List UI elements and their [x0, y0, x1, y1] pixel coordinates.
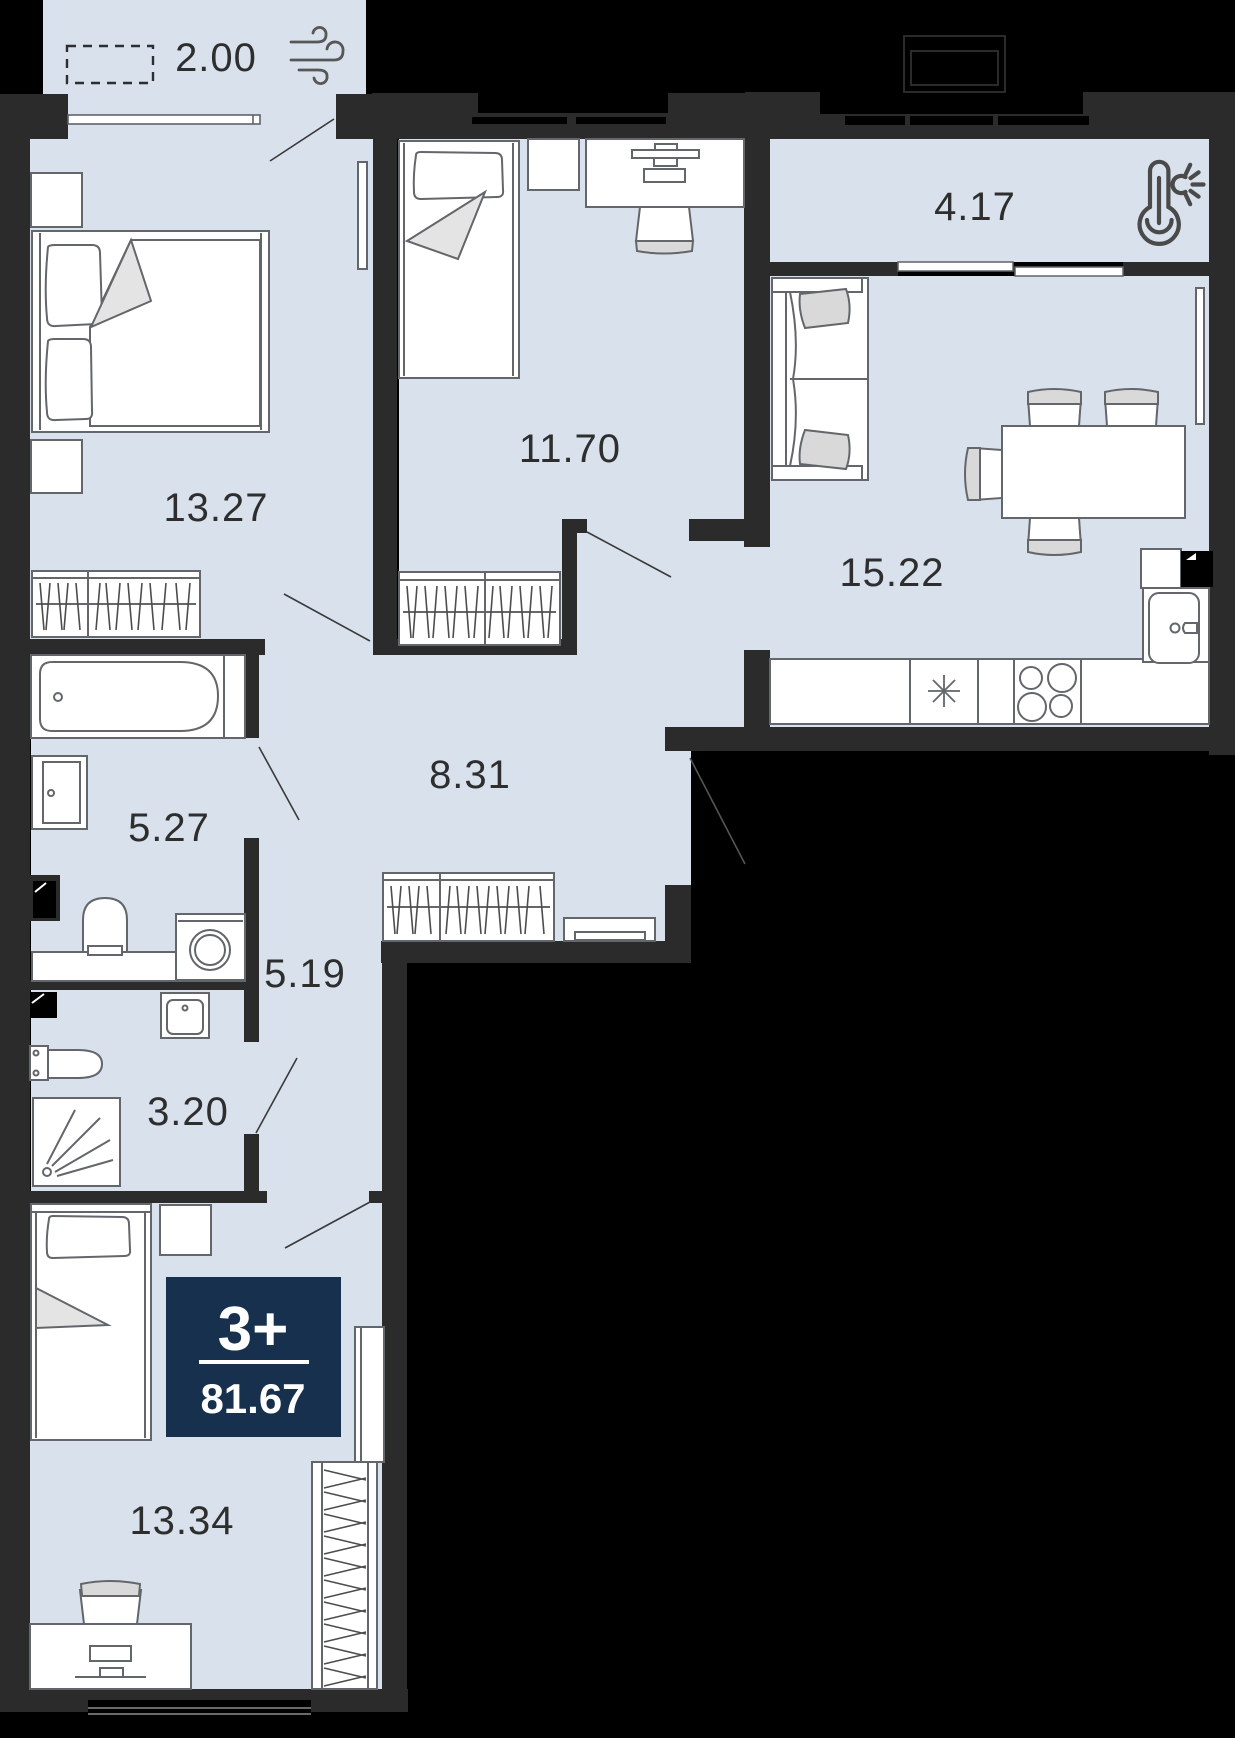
- svg-text:5.19: 5.19: [264, 952, 346, 996]
- svg-text:81.67: 81.67: [200, 1375, 305, 1422]
- svg-text:3+: 3+: [218, 1295, 289, 1364]
- svg-text:13.27: 13.27: [163, 486, 268, 530]
- svg-text:5.27: 5.27: [128, 806, 210, 850]
- svg-text:15.22: 15.22: [839, 551, 944, 595]
- svg-text:13.34: 13.34: [129, 1499, 234, 1543]
- svg-text:8.31: 8.31: [429, 753, 511, 797]
- svg-text:4.17: 4.17: [934, 185, 1016, 229]
- svg-text:3.20: 3.20: [147, 1090, 229, 1134]
- svg-text:11.70: 11.70: [519, 427, 621, 471]
- svg-text:2.00: 2.00: [175, 36, 257, 80]
